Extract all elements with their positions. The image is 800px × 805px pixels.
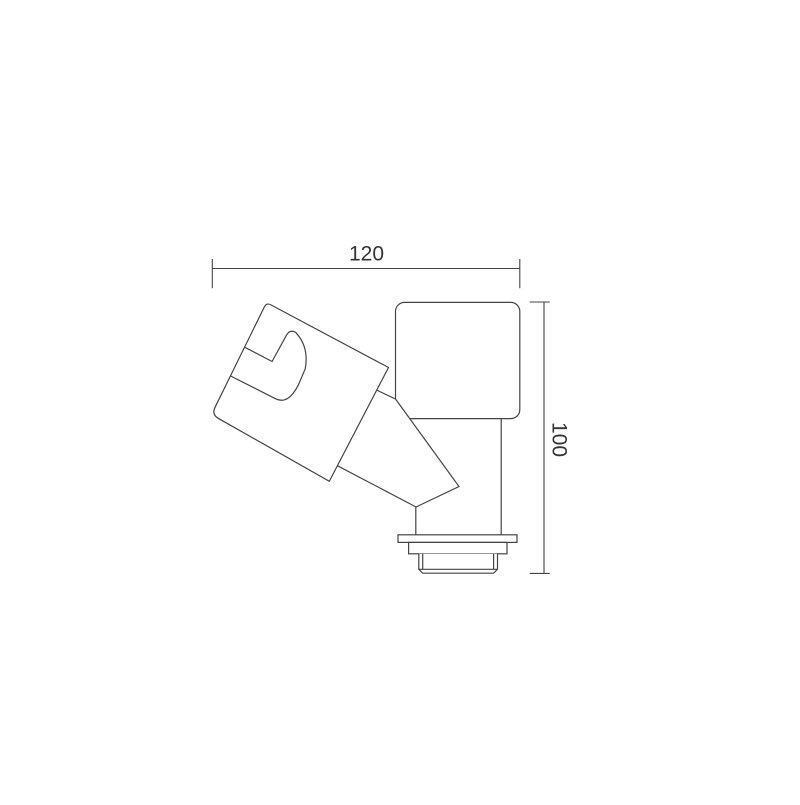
svg-text:100: 100 (548, 422, 571, 457)
svg-text:120: 120 (349, 242, 384, 265)
